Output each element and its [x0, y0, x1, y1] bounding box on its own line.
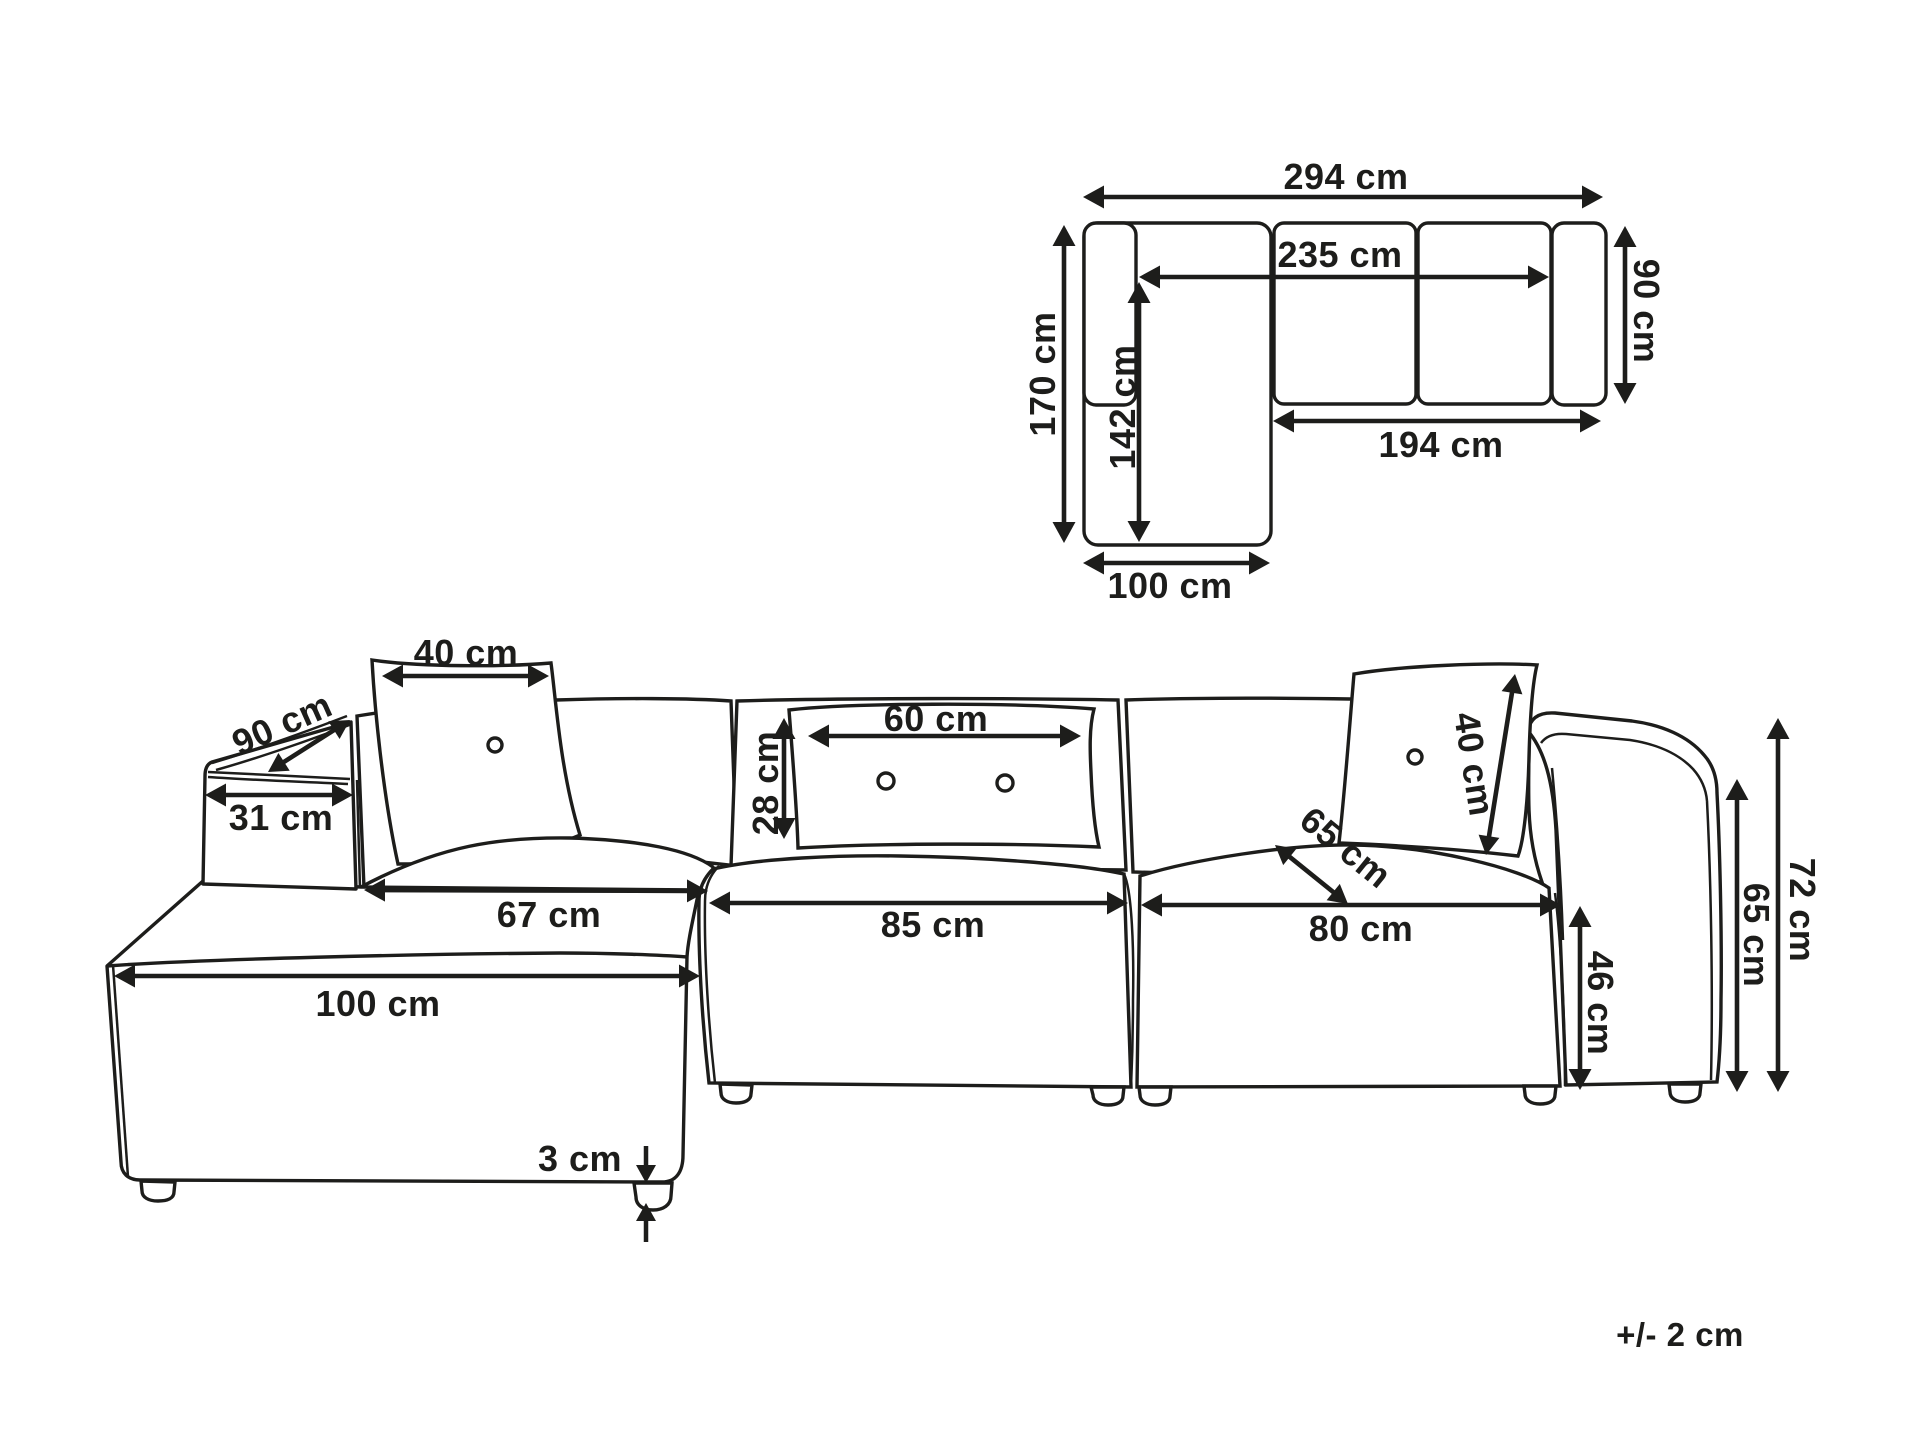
- svg-text:28 cm: 28 cm: [745, 731, 786, 836]
- svg-text:100 cm: 100 cm: [315, 983, 440, 1024]
- svg-text:+/- 2 cm: +/- 2 cm: [1616, 1316, 1744, 1353]
- svg-text:194 cm: 194 cm: [1378, 424, 1503, 465]
- svg-text:90 cm: 90 cm: [1626, 259, 1667, 364]
- svg-text:294 cm: 294 cm: [1283, 156, 1408, 197]
- svg-text:3 cm: 3 cm: [538, 1138, 622, 1179]
- svg-text:67 cm: 67 cm: [497, 894, 602, 935]
- svg-text:46 cm: 46 cm: [1580, 951, 1621, 1056]
- svg-text:40 cm: 40 cm: [414, 632, 519, 673]
- svg-text:235 cm: 235 cm: [1277, 234, 1402, 275]
- svg-text:60 cm: 60 cm: [884, 698, 989, 739]
- svg-text:65 cm: 65 cm: [1736, 883, 1777, 988]
- svg-text:31 cm: 31 cm: [229, 797, 334, 838]
- svg-text:85 cm: 85 cm: [881, 904, 986, 945]
- svg-text:100 cm: 100 cm: [1107, 565, 1232, 606]
- svg-text:80 cm: 80 cm: [1309, 908, 1414, 949]
- svg-text:170 cm: 170 cm: [1022, 311, 1063, 436]
- svg-text:142 cm: 142 cm: [1102, 344, 1143, 469]
- svg-text:72 cm: 72 cm: [1782, 858, 1823, 963]
